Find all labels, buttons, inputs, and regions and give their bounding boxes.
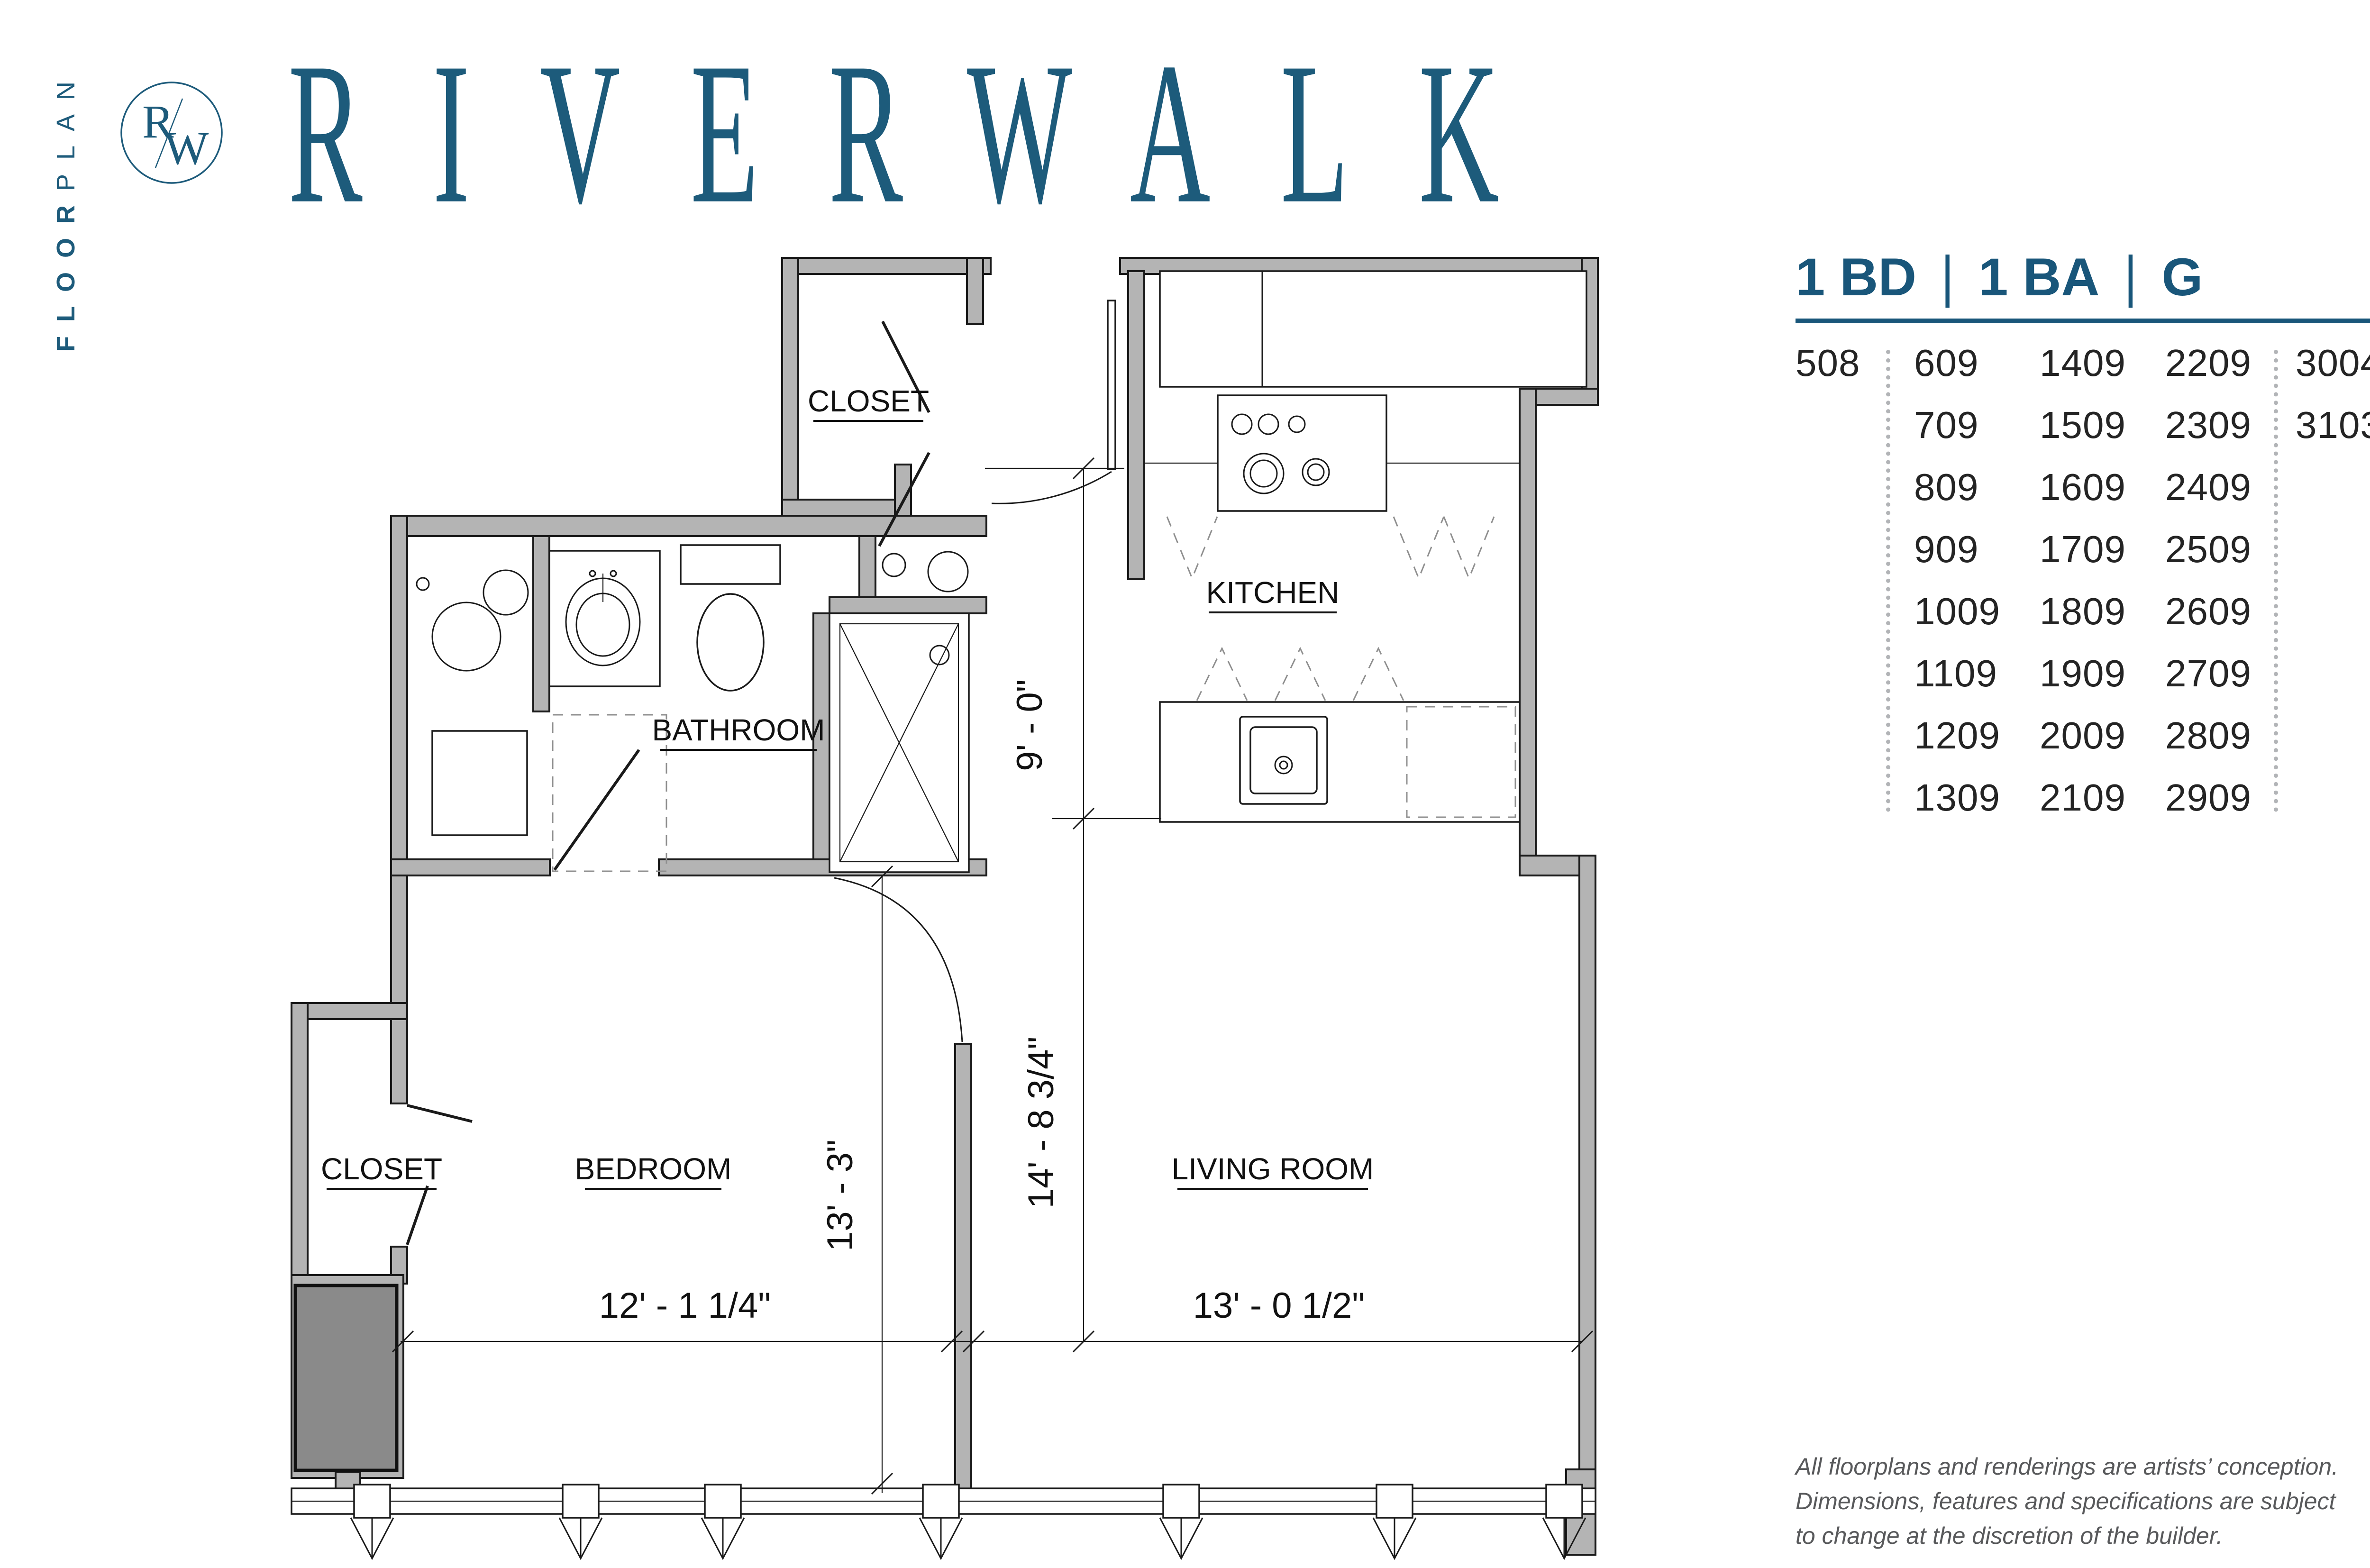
page-title: RIVERWALK [288,32,1569,235]
bathroom-vanity [549,551,660,686]
plan-letter: G [2161,246,2203,308]
unit-number: 2709 [2165,642,2251,704]
unit-number: 3103 [2296,394,2370,456]
unit-number: 2109 [2040,766,2126,829]
dimension-bedroom-width: 12' - 1 1/4" [599,1285,771,1326]
room-label-closet-lower: CLOSET [321,1152,442,1186]
unit-number: 1509 [2040,394,2126,456]
unit-number: 1209 [1914,704,2000,766]
unit-column-5: 30043103 [2296,332,2370,456]
unit-number: 2609 [2165,580,2251,642]
unit-number: 1009 [1914,580,2000,642]
disclaimer-text: All floorplans and renderings are artist… [1796,1449,2370,1553]
beds-label: 1 BD [1796,246,1916,308]
dimension-kitchen-depth: 9' - 0" [1010,679,1050,771]
unit-number: 2909 [2165,766,2251,829]
unit-number: 1309 [1914,766,2000,829]
vertical-label-floor: FLOOR [52,191,80,352]
window-wall [292,1485,1595,1559]
unit-number: 1909 [2040,642,2126,704]
header-separator: | [2124,245,2137,310]
unit-number: 1809 [2040,580,2126,642]
unit-number: 809 [1914,456,2000,518]
room-label-kitchen: KITCHEN [1206,575,1340,610]
unit-number: 1109 [1914,642,2000,704]
unit-number: 2809 [2165,704,2251,766]
room-label-living-room: LIVING ROOM [1172,1152,1374,1186]
dimension-bedroom-depth: 13' - 3" [820,1140,860,1251]
header-separator: | [1941,245,1954,310]
disclaimer-line: Dimensions, features and specifications … [1796,1484,2370,1519]
column-divider [2274,350,2278,812]
unit-number: 1709 [2040,518,2126,580]
toilet [681,545,780,691]
shaft-block [295,1285,397,1470]
unit-column-1: 508 [1796,332,1860,394]
unit-number: 909 [1914,518,2000,580]
window-tick-icons [351,1518,1586,1559]
dimension-living-depth: 14' - 8 3/4" [1021,1037,1061,1209]
unit-number: 1409 [2040,332,2126,394]
dimension-living-width: 13' - 0 1/2" [1193,1285,1365,1326]
unit-column-4: 22092309240925092609270928092909 [2165,332,2251,829]
utility-niche [883,552,968,592]
room-label-bathroom: BATHROOM [652,713,825,747]
unit-column-2: 6097098099091009110912091309 [1914,332,2000,829]
vertical-floorplan-label: FLOORPLAN [51,67,81,352]
riverwalk-logo: R W [118,80,225,186]
unit-number: 1609 [2040,456,2126,518]
unit-number: 709 [1914,394,2000,456]
unit-type-header: 1 BD | 1 BA | G [1796,246,2203,308]
room-label-bedroom: BEDROOM [575,1152,732,1186]
baths-label: 1 BA [1978,246,2099,308]
floorplan-sheet: FLOORPLAN R W RIVERWALK 1 BD | 1 BA | G … [0,0,2370,1568]
cooktop [1218,395,1386,511]
unit-number: 2409 [2165,456,2251,518]
floorplan-drawing: CLOSET KITCHEN BATHROOM CLOSET BEDROOM L… [284,213,1659,1568]
unit-number: 609 [1914,332,2000,394]
walls [292,258,1598,1555]
laundry-appliances [417,570,528,835]
unit-column-3: 14091509160917091809190920092109 [2040,332,2126,829]
kitchen-island [1160,702,1520,822]
unit-number: 3004 [2296,332,2370,394]
unit-number: 2209 [2165,332,2251,394]
unit-number: 2009 [2040,704,2126,766]
vertical-label-plan: PLAN [52,67,80,191]
disclaimer-line: All floorplans and renderings are artist… [1796,1449,2370,1484]
header-underline [1796,319,2370,323]
column-divider [1886,350,1890,812]
unit-number: 2509 [2165,518,2251,580]
disclaimer-line: to change at the discretion of the build… [1796,1519,2370,1553]
unit-number: 2309 [2165,394,2251,456]
shower [829,613,969,872]
room-label-closet-top: CLOSET [808,384,929,418]
unit-number: 508 [1796,332,1860,394]
logo-letter-w: W [164,122,209,174]
